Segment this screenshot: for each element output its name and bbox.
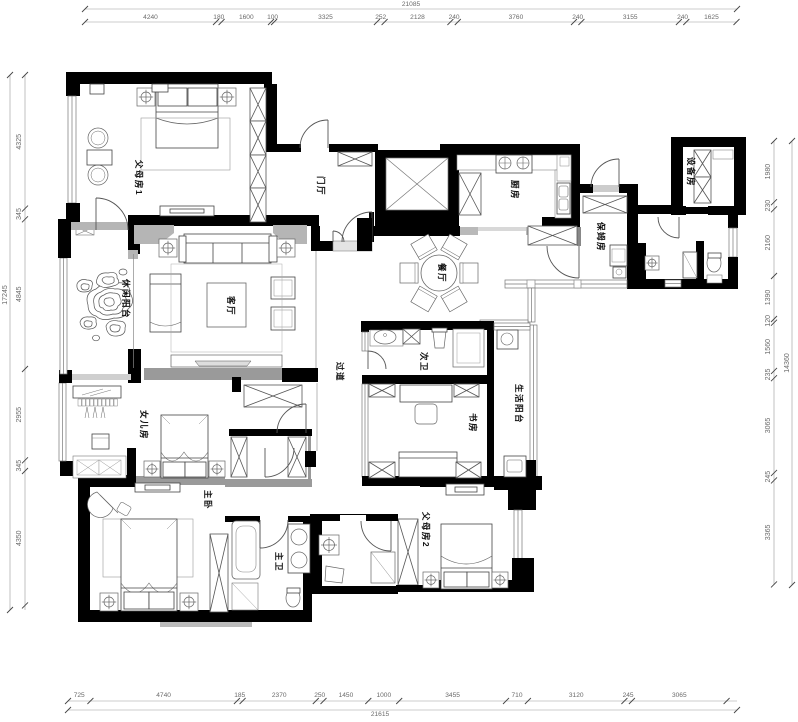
svg-text:1600: 1600 [239,14,254,21]
svg-text:父母房1: 父母房1 [134,159,144,196]
svg-text:保姆房: 保姆房 [596,221,606,252]
svg-text:女儿房: 女儿房 [139,410,149,440]
svg-text:餐厅: 餐厅 [437,262,447,283]
svg-text:3120: 3120 [569,692,584,699]
svg-text:185: 185 [234,692,245,699]
svg-text:245: 245 [623,692,634,699]
svg-text:345: 345 [16,460,23,472]
svg-text:3365: 3365 [765,525,772,541]
svg-text:主卧: 主卧 [203,490,213,510]
svg-text:3760: 3760 [509,14,524,21]
svg-text:次卫: 次卫 [419,352,429,372]
svg-text:2128: 2128 [410,14,425,21]
svg-text:1450: 1450 [339,692,354,699]
svg-text:180: 180 [213,14,224,21]
svg-text:4350: 4350 [16,530,23,546]
svg-text:21615: 21615 [371,711,390,717]
svg-text:3455: 3455 [445,692,460,699]
svg-text:父母房2: 父母房2 [421,511,431,548]
svg-text:书房: 书房 [468,413,478,433]
svg-text:21085: 21085 [402,1,421,8]
svg-text:4740: 4740 [156,692,171,699]
svg-text:1560: 1560 [765,339,772,355]
svg-text:250: 250 [314,692,325,699]
svg-text:门厅: 门厅 [316,176,326,196]
svg-text:230: 230 [765,200,772,212]
svg-text:1000: 1000 [376,692,391,699]
svg-text:2370: 2370 [272,692,287,699]
svg-text:14360: 14360 [784,353,791,373]
svg-text:100: 100 [267,14,278,21]
svg-text:3065: 3065 [765,418,772,434]
svg-text:3065: 3065 [672,692,687,699]
svg-text:休闲阳台: 休闲阳台 [121,278,131,319]
svg-text:4845: 4845 [16,286,23,302]
svg-text:客厅: 客厅 [226,295,236,316]
svg-text:过道: 过道 [335,362,345,382]
svg-text:252: 252 [375,14,386,21]
svg-text:生活阳台: 生活阳台 [514,384,524,424]
svg-text:240: 240 [572,14,583,21]
svg-text:设备房: 设备房 [686,157,696,187]
svg-text:1980: 1980 [765,164,772,180]
svg-text:3155: 3155 [623,14,638,21]
svg-text:240: 240 [449,14,460,21]
svg-text:240: 240 [677,14,688,21]
svg-text:主卫: 主卫 [274,552,284,572]
svg-text:4325: 4325 [16,134,23,150]
svg-text:245: 245 [765,471,772,483]
svg-text:3325: 3325 [318,14,333,21]
svg-text:1625: 1625 [704,14,719,21]
svg-text:2955: 2955 [16,407,23,423]
svg-text:4240: 4240 [143,14,158,21]
svg-text:120: 120 [765,315,772,327]
svg-text:710: 710 [511,692,522,699]
svg-text:345: 345 [16,208,23,220]
svg-text:2160: 2160 [765,235,772,251]
svg-text:厨房: 厨房 [510,180,520,200]
svg-text:17245: 17245 [2,285,9,305]
svg-text:1390: 1390 [765,290,772,306]
svg-text:235: 235 [765,369,772,381]
svg-text:725: 725 [74,692,85,699]
